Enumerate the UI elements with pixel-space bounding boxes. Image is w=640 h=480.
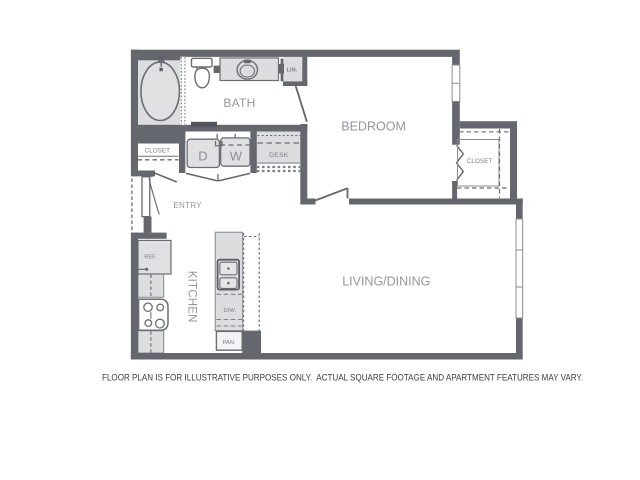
svg-text:REF.: REF. [144, 255, 157, 261]
svg-text:CLOSET: CLOSET [467, 158, 493, 165]
svg-text:ENTRY: ENTRY [173, 201, 202, 210]
svg-text:FLOOR PLAN IS FOR ILLUSTRATIVE: FLOOR PLAN IS FOR ILLUSTRATIVE PURPOSES … [102, 373, 583, 384]
svg-text:BEDROOM: BEDROOM [341, 119, 406, 133]
svg-text:CLOSET: CLOSET [145, 148, 171, 155]
svg-text:LIVING/DINING: LIVING/DINING [342, 275, 430, 289]
svg-text:BATH: BATH [223, 96, 255, 110]
svg-text:PAN.: PAN. [222, 340, 235, 346]
svg-text:LIN.: LIN. [287, 68, 298, 74]
svg-text:DESK: DESK [269, 152, 289, 159]
svg-text:KITCHEN: KITCHEN [185, 271, 197, 323]
svg-text:W: W [230, 148, 243, 163]
svg-text:D: D [198, 148, 207, 163]
svg-text:D/W.: D/W. [224, 308, 237, 314]
